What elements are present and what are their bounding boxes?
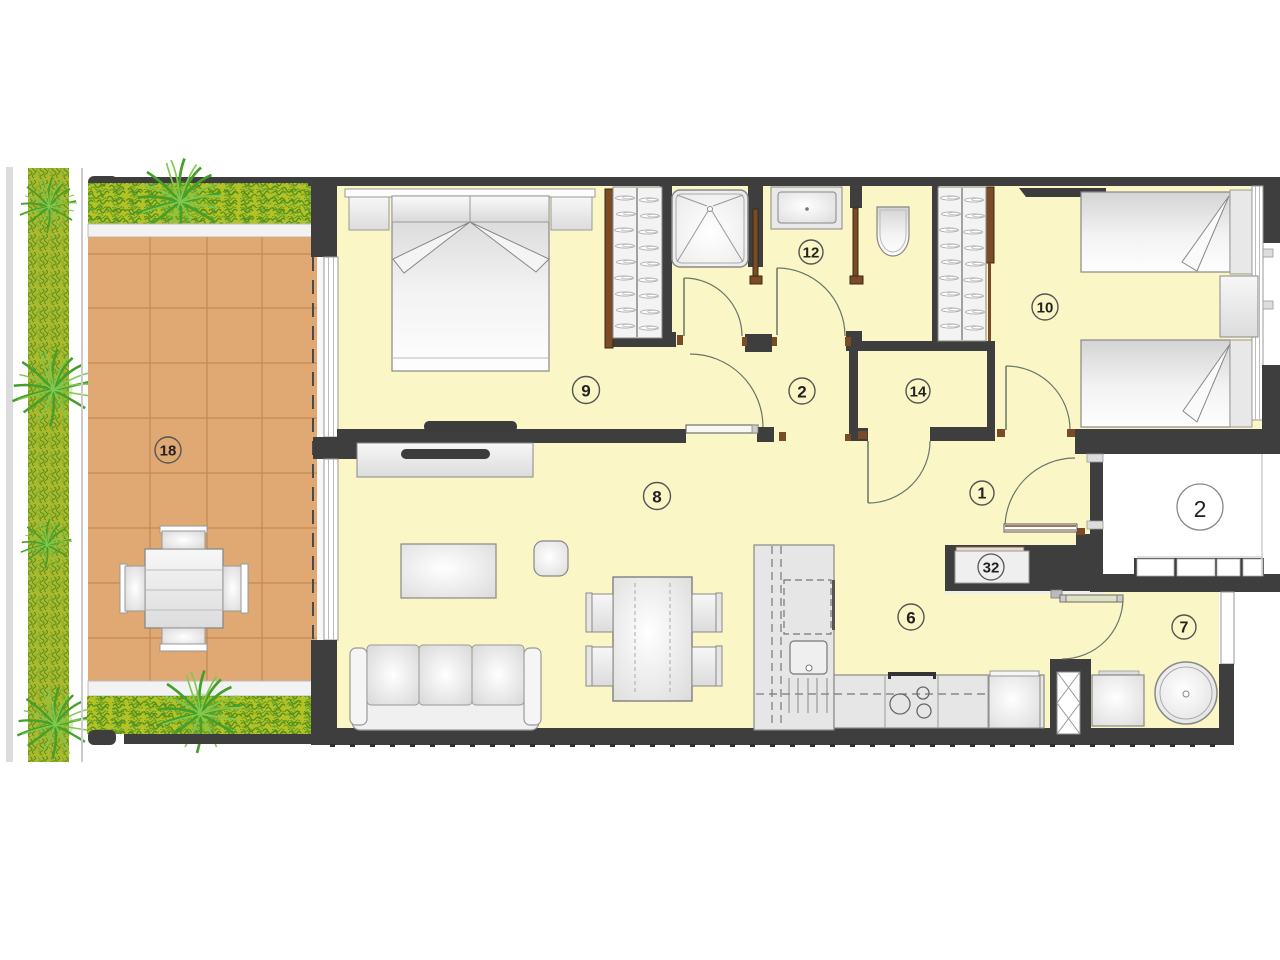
svg-text:8: 8	[652, 488, 661, 507]
svg-text:6: 6	[906, 609, 915, 628]
svg-text:14: 14	[910, 384, 927, 401]
svg-text:32: 32	[983, 560, 1000, 577]
svg-text:12: 12	[803, 245, 820, 262]
svg-text:1: 1	[978, 486, 987, 503]
svg-text:9: 9	[581, 382, 590, 401]
svg-text:2: 2	[797, 383, 806, 402]
svg-text:18: 18	[160, 443, 177, 460]
svg-text:10: 10	[1037, 300, 1054, 317]
svg-text:7: 7	[1180, 620, 1189, 637]
svg-text:2: 2	[1194, 496, 1207, 522]
